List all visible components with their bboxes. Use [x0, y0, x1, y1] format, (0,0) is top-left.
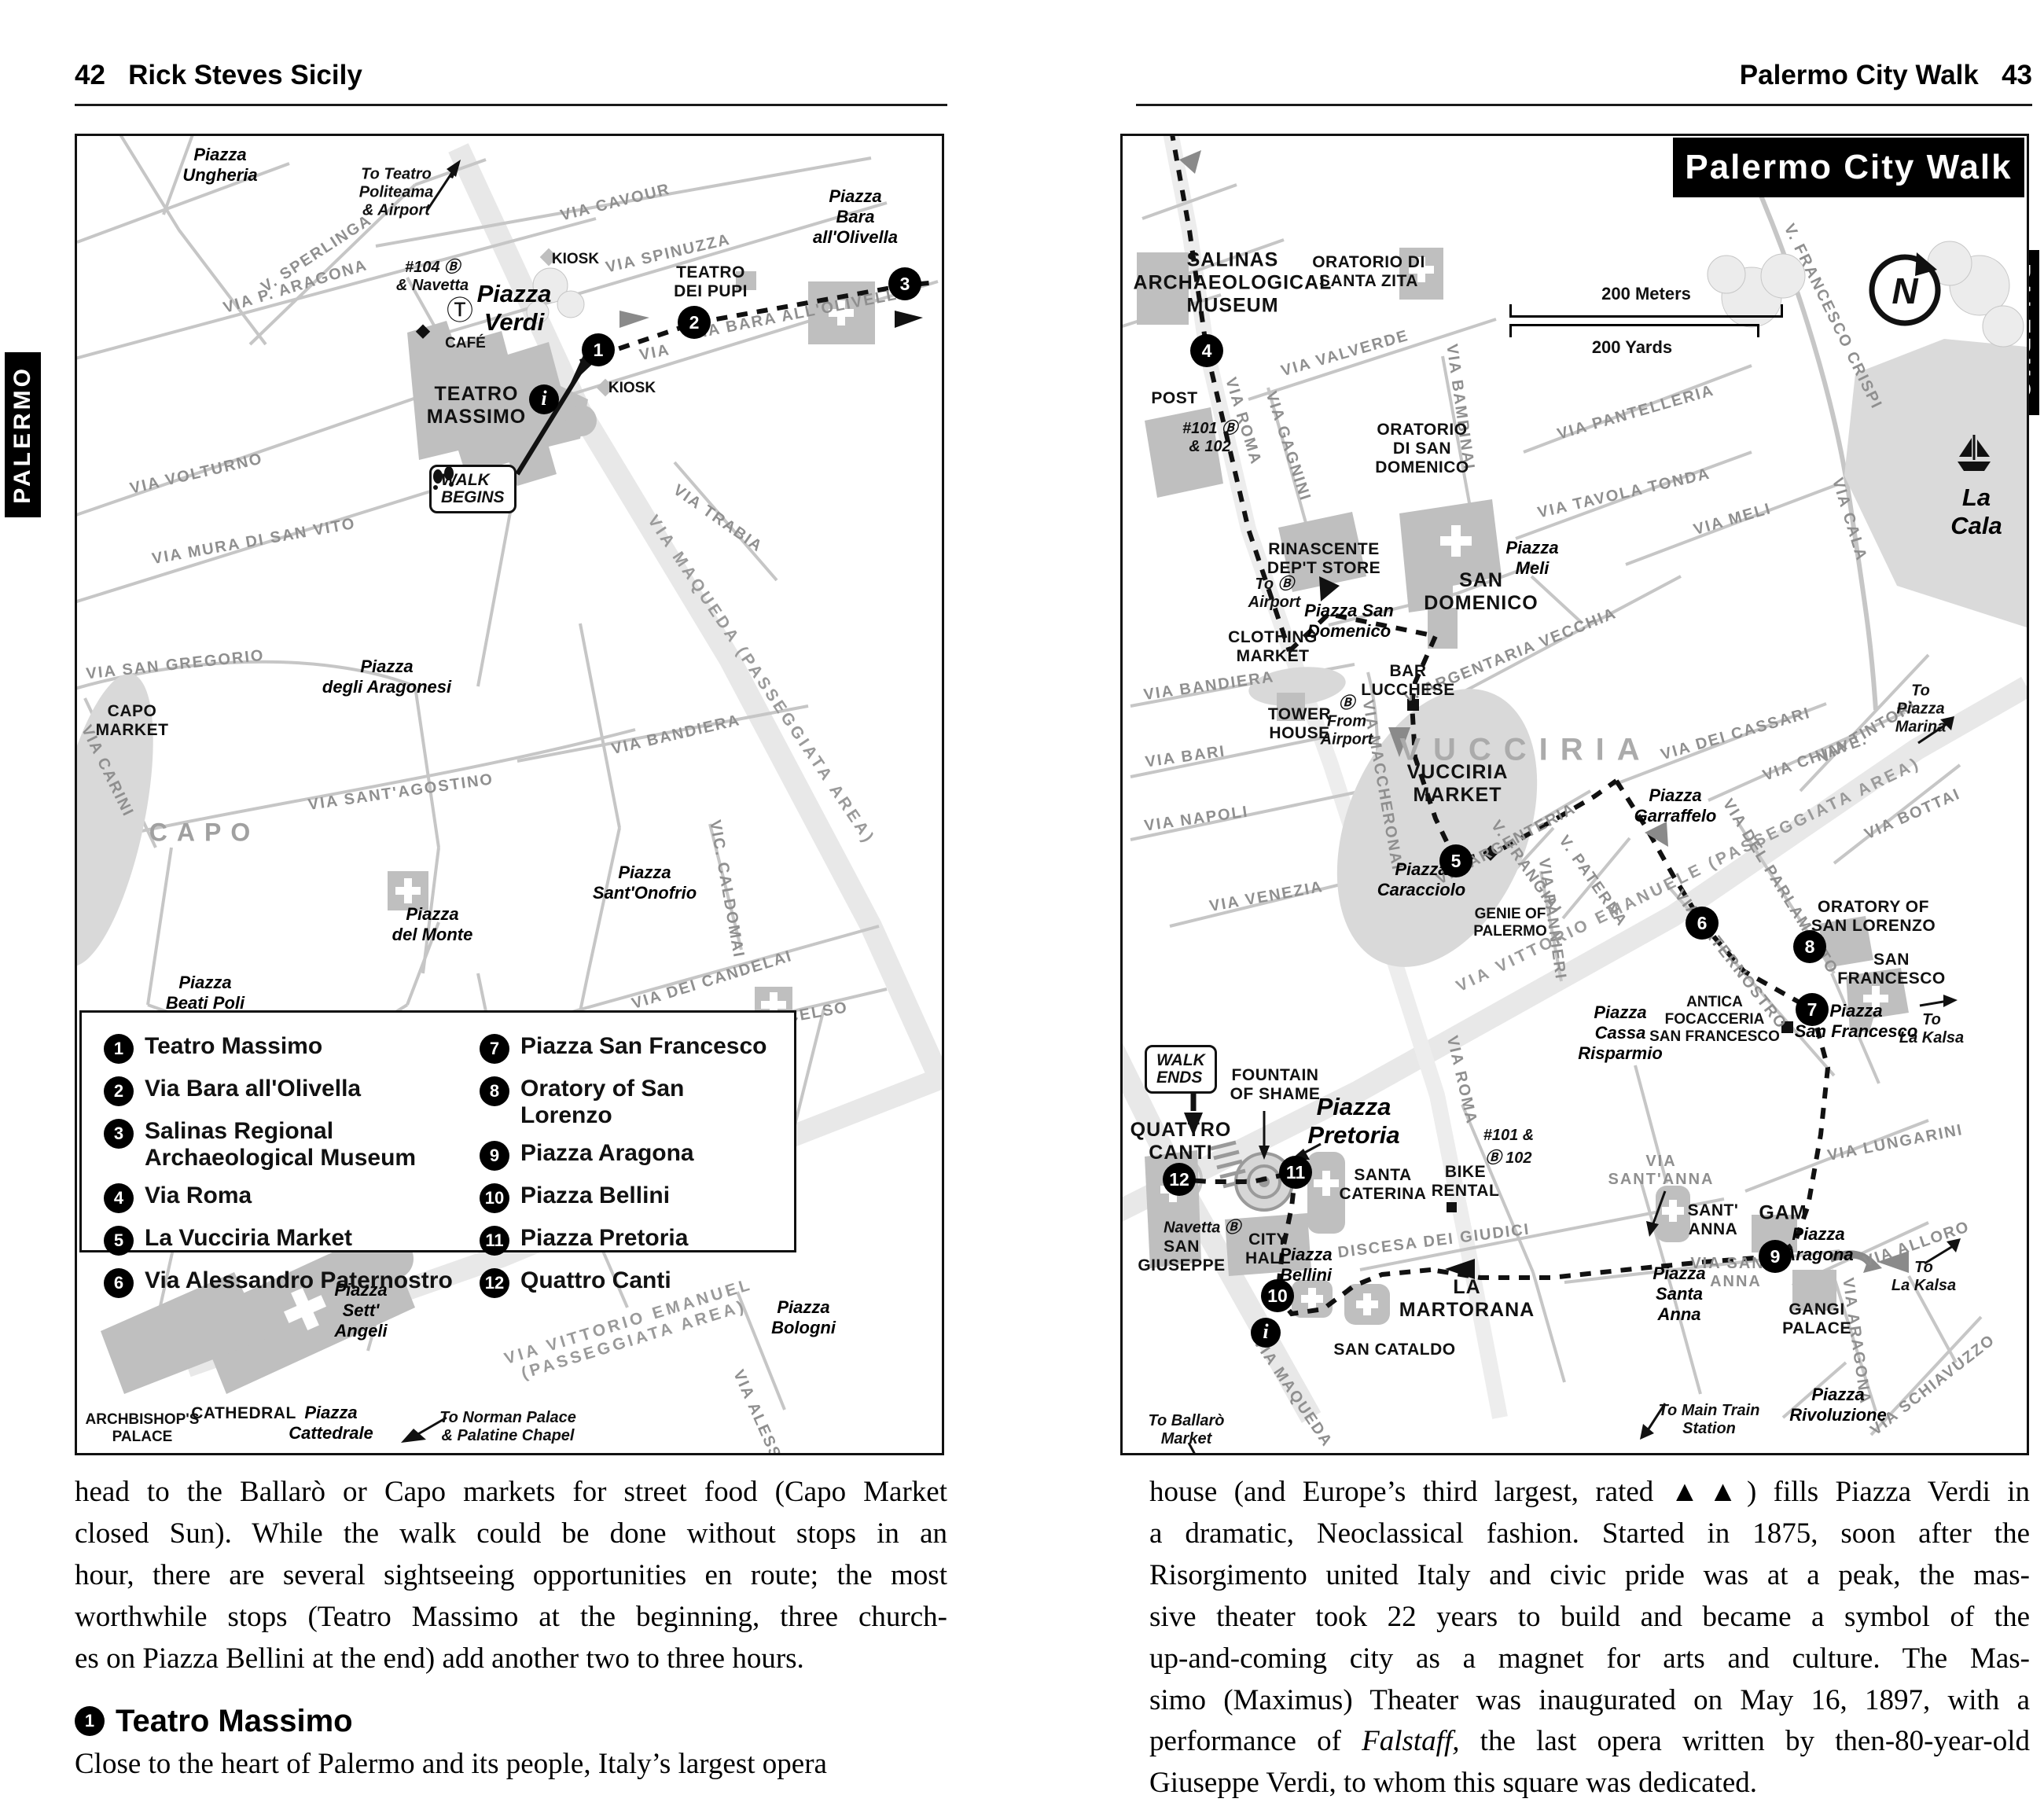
scale-meters-label: 200 Meters — [1509, 284, 1783, 304]
right-map-label: VIA ROMA — [1443, 1034, 1480, 1126]
right-map-label: VIA VENEZIA — [1208, 878, 1325, 916]
left-map-label: VIA CAVOUR — [559, 181, 673, 226]
right-paragraph: house (and Europe’s third largest, rated… — [1149, 1472, 2030, 1804]
right-map-label: SANT' ANNA — [1688, 1201, 1739, 1239]
left-map-label: VIA DEI CANDELAI — [630, 947, 795, 1013]
legend-item-label: Oratory of San Lorenzo — [520, 1076, 778, 1128]
legend-item-number: 12 — [480, 1268, 509, 1298]
body-text-line: a dramatic, Neoclassical fashion. Starte… — [1149, 1514, 2030, 1555]
body-text-line: performance of Falstaff, the last opera … — [1149, 1721, 2030, 1763]
left-map-label: TEATRO MASSIMO — [427, 383, 526, 429]
left-map-label: VIC. CALDOMAI — [705, 818, 748, 960]
footprints-icon — [432, 467, 455, 494]
teatro-massimo-map: VIA CAVOURVIA SPINUZZAVIA BARA ALL'OLIVE… — [75, 134, 944, 1455]
legend-item-number: 11 — [480, 1226, 509, 1256]
right-map-label: Piazza Cassa Risparmio — [1578, 1002, 1663, 1064]
legend-item-label: Via Alessandro Paternostro — [145, 1267, 453, 1298]
right-map-label: ORATORY OF SAN LORENZO — [1811, 898, 1936, 936]
right-map-label: VIA MELI — [1692, 500, 1774, 539]
left-map-label: Piazza Ungheria — [182, 145, 257, 186]
legend-item-number: 8 — [480, 1076, 509, 1106]
right-map-label: SALINAS ARCHAEOLOGICAL MUSEUM — [1134, 249, 1333, 318]
walk-stop-6: 6 — [1686, 907, 1719, 940]
right-map-label: VIA NAPOLI — [1143, 803, 1250, 835]
legend-item: 1Teatro Massimo — [104, 1033, 473, 1064]
right-map-label: Ⓑ From Airport — [1321, 690, 1373, 749]
walk-stop-3: 3 — [888, 267, 921, 300]
right-header-rule — [1136, 104, 2032, 106]
right-map-label: DISCESA DEI GIUDICI — [1336, 1221, 1531, 1263]
left-map-label: CAFÉ — [445, 335, 486, 352]
body-text-line: Giuseppe Verdi, to whom this square was … — [1149, 1763, 2030, 1804]
legend-item: 7Piazza San Francesco — [480, 1033, 778, 1064]
left-paragraph-continuation: Close to the heart of Palermo and its pe… — [75, 1744, 947, 1786]
left-map-label: Piazza Bara all'Olivella — [812, 186, 899, 248]
left-map-label: KIOSK — [552, 251, 599, 268]
right-map-label: Piazza Aragona — [1783, 1224, 1853, 1265]
left-body-text: head to the Ballarò or Capo markets for … — [75, 1472, 947, 1785]
right-map-label: FOUNTAIN OF SHAME — [1230, 1066, 1321, 1104]
right-map-label: Piazza Rivoluzione — [1789, 1385, 1886, 1425]
right-map-label: LA MARTORANA — [1399, 1276, 1535, 1322]
right-map-label: SANTA CATERINA — [1340, 1166, 1427, 1204]
right-map-label: #101 Ⓑ & 102 — [1182, 415, 1237, 456]
legend-column-2: 7Piazza San Francesco8Oratory of San Lor… — [480, 1033, 778, 1242]
section-heading: 1 Teatro Massimo — [75, 1704, 947, 1739]
right-map-label: VIA MAQUEDA — [1249, 1334, 1336, 1451]
walk-stop-4: 4 — [1190, 334, 1223, 367]
right-map-label: VIA SANT'ANNA — [1608, 1153, 1715, 1189]
map-title-banner: Palermo City Walk — [1673, 138, 2024, 197]
right-map-label: To La Kalsa — [1891, 1259, 1956, 1295]
right-map-label: V. FRANCESCO CRISPI — [1780, 221, 1885, 412]
left-map-label: VIA MAQUEDA (PASSEGGIATA AREA) — [643, 512, 878, 848]
walk-stop-8: 8 — [1793, 930, 1826, 963]
right-map-label: Piazza Pretoria — [1307, 1093, 1399, 1149]
walk-begins-box: WALK BEGINS — [429, 465, 517, 513]
body-text-line: sive theater took 22 years to build and … — [1149, 1597, 2030, 1639]
right-map-label: GENIE OF PALERMO — [1473, 906, 1547, 940]
walk-stop-10: 10 — [1261, 1279, 1294, 1312]
walk-stop-1: 1 — [582, 333, 615, 366]
right-map-label: SAN CATALDO — [1333, 1341, 1455, 1359]
legend-item-label: Teatro Massimo — [145, 1033, 322, 1064]
scale-yards-bar — [1509, 324, 1759, 337]
legend-item-number: 1 — [104, 1034, 134, 1064]
right-map-label: #101 & Ⓑ 102 — [1483, 1127, 1535, 1168]
heading-title: Teatro Massimo — [116, 1704, 353, 1739]
left-map-label: Piazza Sant'Onofrio — [593, 863, 697, 903]
legend-item: 9Piazza Aragona — [480, 1140, 778, 1171]
left-map-label: VIA TRABIA — [670, 481, 766, 557]
left-map-label: ARCHBISHOP'S PALACE — [86, 1411, 200, 1446]
right-map-label: VIA GAGNINI — [1262, 389, 1314, 504]
right-map-label: Piazza Santa Anna — [1652, 1263, 1705, 1325]
left-map-label: Piazza degli Aragonesi — [322, 657, 451, 697]
legend-item-number: 3 — [104, 1119, 134, 1149]
right-map-label: VIA BARI — [1144, 742, 1226, 771]
legend-item: 5La Vucciria Market — [104, 1225, 473, 1256]
right-map-label: VIA LUNGARINI — [1826, 1121, 1965, 1165]
scale-yards-label: 200 Yards — [1509, 337, 1755, 358]
legend-item-label: Via Roma — [145, 1183, 252, 1213]
legend-item-label: Piazza Bellini — [520, 1183, 670, 1213]
left-map-label: Piazza Beati Poli — [166, 973, 244, 1013]
map-scale: 200 Meters 200 Yards — [1509, 284, 1783, 358]
right-map-label: BAR LUCCHESE — [1361, 662, 1455, 700]
legend-item: 8Oratory of San Lorenzo — [480, 1076, 778, 1128]
body-text-line: up-and-coming city as a magnet for arts … — [1149, 1639, 2030, 1680]
walk-stop-11: 11 — [1279, 1156, 1312, 1189]
walk-stop-5: 5 — [1439, 844, 1472, 877]
left-map-label: TEATRO DEI PUPI — [674, 263, 748, 301]
left-map-label: VIA ALESSI — [729, 1367, 787, 1455]
body-text-line: house (and Europe’s third largest, rated… — [1149, 1472, 2030, 1514]
right-map-label: To Ballarò Market — [1148, 1412, 1224, 1448]
legend-item-number: 10 — [480, 1183, 509, 1213]
legend-item: 2Via Bara all'Olivella — [104, 1076, 473, 1106]
right-map-label: To Piazza Marina — [1895, 682, 1946, 737]
right-map-label: To Main Train Station — [1659, 1402, 1760, 1438]
right-map-label: BIKE RENTAL — [1432, 1163, 1500, 1201]
heading-stop-number: 1 — [75, 1706, 105, 1736]
right-map-label: Navetta Ⓑ — [1164, 1215, 1241, 1238]
body-text-line: es on Piazza Bellini at the end) add ano… — [75, 1639, 947, 1680]
legend-item-number: 6 — [104, 1268, 134, 1298]
right-map-label: VIA VALVERDE — [1279, 327, 1411, 381]
right-map-label: POST — [1151, 389, 1197, 408]
info-icon: i — [1251, 1318, 1281, 1348]
body-text-line: head to the Ballarò or Capo markets for … — [75, 1472, 947, 1514]
left-map-label: To Teatro Politeama & Airport — [359, 166, 433, 220]
right-map-label: Piazza Bellini — [1279, 1245, 1332, 1286]
body-text-line: simo (Maximus) Theater was inaugurated o… — [1149, 1680, 2030, 1722]
right-map-label: To La Kalsa — [1899, 1011, 1964, 1047]
right-map-label: La Cala — [1950, 484, 2002, 540]
left-map-label: VIA VOLTURNO — [128, 450, 265, 498]
legend-item: 11Piazza Pretoria — [480, 1225, 778, 1256]
right-map-label: GAM — [1759, 1202, 1807, 1225]
legend-item-number: 5 — [104, 1226, 134, 1256]
right-map-label: To Ⓑ Airport — [1248, 571, 1301, 612]
left-map-label: To Norman Palace & Palatine Chapel — [439, 1409, 576, 1445]
right-map-label: VIA BANDIERA — [1142, 668, 1275, 704]
right-body-text: house (and Europe’s third largest, rated… — [1149, 1472, 2030, 1804]
left-map-label: VIA SANT'AGOSTINO — [307, 771, 495, 815]
left-map-label: CAPO MARKET — [96, 702, 169, 740]
legend-item-label: Quattro Canti — [520, 1267, 671, 1298]
body-text-line: hour, there are several sightseeing oppo… — [75, 1555, 947, 1597]
right-map-label: VIA SCHIAVUZZO — [1867, 1331, 1999, 1440]
legend-item-number: 7 — [480, 1034, 509, 1064]
right-map-label: VUCCIRIA — [1399, 733, 1652, 768]
legend-item: 12Quattro Canti — [480, 1267, 778, 1298]
legend-item-label: Piazza Pretoria — [520, 1225, 688, 1256]
right-map-label: VIA PANTELLERIA — [1555, 381, 1716, 443]
legend-item-label: La Vucciria Market — [145, 1225, 352, 1256]
right-map-label: VIA BOTTAI — [1862, 785, 1963, 844]
left-map-label: Ⓣ — [447, 289, 473, 328]
body-text-line: Risorgimento united Italy and civic prid… — [1149, 1555, 2030, 1597]
right-map-label: Piazza Garraffelo — [1634, 785, 1717, 826]
left-map-label: Piazza Cattedrale — [289, 1403, 373, 1444]
book-spread: 42 Rick Steves Sicily Palermo City Walk … — [0, 0, 2044, 1817]
right-map-label: ANTICA FOCACCERIA SAN FRANCESCO — [1649, 994, 1780, 1046]
legend-item-number: 9 — [480, 1141, 509, 1171]
right-map-label: ORATORIO DI SANTA ZITA — [1312, 253, 1425, 291]
walk-stop-7: 7 — [1796, 993, 1829, 1026]
right-map-label: ORATORIO DI SAN DOMENICO — [1375, 421, 1469, 477]
left-page-number: 42 — [75, 60, 105, 90]
legend-item: 10Piazza Bellini — [480, 1183, 778, 1213]
left-map-label: VIA — [638, 341, 671, 365]
legend-item: 3Salinas Regional Archaeological Museum — [104, 1118, 473, 1171]
right-map-label: VIA TAVOLA TONDA — [1536, 465, 1712, 522]
left-header-rule — [75, 104, 947, 106]
left-map-label: VIA BANDIERA — [610, 712, 743, 759]
left-map-label: Piazza Bologni — [771, 1297, 836, 1338]
left-map-label: CATHEDRAL — [191, 1404, 296, 1423]
right-map-label: Piazza Meli — [1505, 538, 1558, 579]
left-map-label: VIA MURA DI SAN VITO — [151, 515, 358, 568]
right-map-label: QUATTRO CANTI — [1130, 1119, 1232, 1164]
body-text-line: worthwhile stops (Teatro Massimo at the … — [75, 1597, 947, 1639]
right-map-label: Piazza San Domenico — [1304, 601, 1394, 642]
legend-column-1: 1Teatro Massimo2Via Bara all'Olivella3Sa… — [104, 1033, 473, 1242]
left-page-header: 42 Rick Steves Sicily — [75, 60, 362, 91]
left-map-label: Piazza Verdi — [477, 280, 552, 337]
legend-item: 4Via Roma — [104, 1183, 473, 1213]
legend-item: 6Via Alessandro Paternostro — [104, 1267, 473, 1298]
legend-item-label: Via Bara all'Olivella — [145, 1076, 361, 1106]
left-map-label: CAPO — [149, 818, 259, 848]
walk-stop-12: 12 — [1163, 1163, 1196, 1196]
walk-ends-label: WALK ENDS — [1156, 1052, 1205, 1087]
left-tab-label: PALERMO — [9, 366, 36, 504]
right-map-label: SAN GIUSEPPE — [1138, 1238, 1225, 1275]
left-map-label: KIOSK — [608, 380, 656, 397]
info-icon: i — [529, 384, 559, 414]
right-page-number: 43 — [2002, 60, 2032, 90]
legend-item-number: 2 — [104, 1076, 134, 1106]
right-page-title: Palermo City Walk — [1740, 60, 1979, 90]
left-map-label: VIA SAN GREGORIO — [85, 647, 265, 684]
right-map-label: GANGI PALACE — [1782, 1300, 1851, 1338]
left-page-title: Rick Steves Sicily — [128, 60, 362, 90]
legend-item-label: Piazza Aragona — [520, 1140, 694, 1171]
legend-item-label: Piazza San Francesco — [520, 1033, 766, 1064]
right-map-label: VIA DEI CASSARI — [1659, 704, 1813, 764]
map-legend: 1Teatro Massimo2Via Bara all'Olivella3Sa… — [79, 1010, 796, 1252]
legend-item-number: 4 — [104, 1183, 134, 1213]
walk-ends-box: WALK ENDS — [1145, 1045, 1217, 1094]
legend-item-label: Salinas Regional Archaeological Museum — [145, 1118, 416, 1171]
walk-stop-9: 9 — [1759, 1240, 1792, 1273]
scale-meters-bar — [1509, 304, 1783, 318]
right-map-label: VUCCIRIA MARKET — [1407, 761, 1509, 807]
left-map-label: Piazza del Monte — [392, 904, 473, 945]
body-text-line: closed Sun). While the walk could be don… — [75, 1514, 947, 1555]
walk-stop-2: 2 — [678, 306, 711, 339]
right-page-header: Palermo City Walk 43 — [1740, 60, 2032, 91]
right-map-label: SAN FRANCESCO — [1837, 951, 1946, 988]
palermo-city-walk-map: N VIA VALVERDEVIA ROMAVIA GAGNINIVIA BAM… — [1120, 134, 2029, 1455]
left-margin-tab: PALERMO — [5, 352, 41, 517]
left-paragraph: head to the Ballarò or Capo markets for … — [75, 1472, 947, 1680]
right-map-label: VIA CALA — [1828, 476, 1870, 564]
